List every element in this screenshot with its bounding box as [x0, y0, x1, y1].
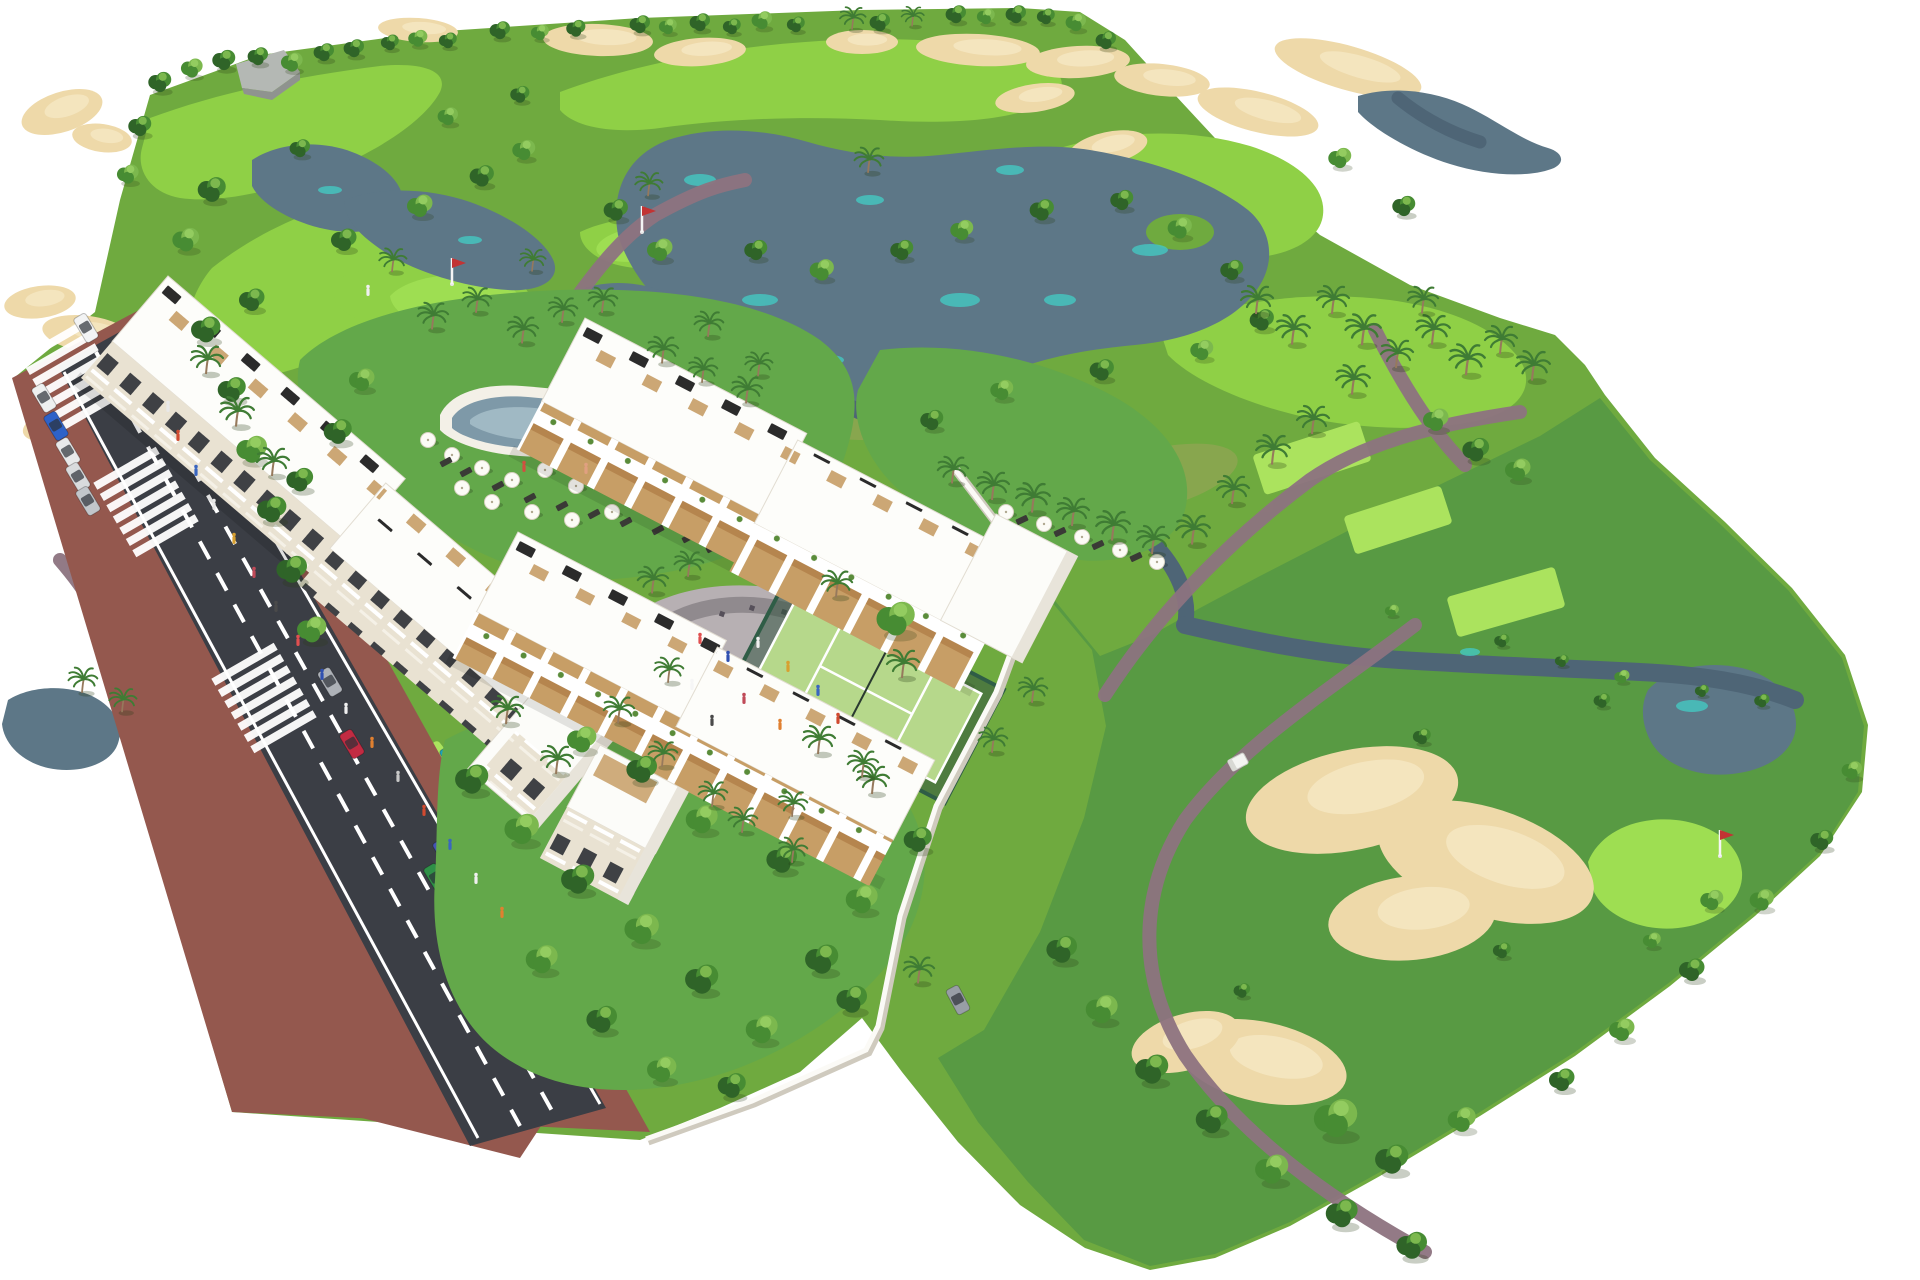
person — [522, 461, 526, 472]
person — [370, 737, 374, 748]
masterplan-render: Aerial 3D architectural render: golf res… — [0, 0, 1920, 1280]
person — [836, 713, 840, 724]
render-canvas: Aerial 3D architectural render: golf res… — [0, 0, 1920, 1280]
tree — [117, 165, 140, 188]
person — [698, 633, 702, 644]
person — [252, 567, 256, 578]
person — [786, 661, 790, 672]
tree — [1328, 148, 1352, 172]
person — [778, 719, 782, 730]
person — [500, 907, 504, 918]
person — [232, 533, 236, 544]
person — [584, 463, 588, 474]
person — [474, 873, 478, 884]
tree — [128, 116, 152, 140]
person — [344, 703, 348, 714]
tree — [1326, 1199, 1360, 1232]
tree — [181, 59, 204, 82]
person — [296, 635, 300, 646]
person — [742, 693, 746, 704]
person — [396, 771, 400, 782]
person — [212, 499, 216, 510]
tree — [1549, 1069, 1576, 1096]
person — [448, 839, 452, 850]
tree — [1392, 196, 1416, 220]
person — [274, 601, 278, 612]
person — [176, 430, 180, 441]
person — [166, 401, 170, 412]
tree — [148, 72, 172, 96]
person — [690, 679, 694, 690]
person — [726, 651, 730, 662]
person — [710, 715, 714, 726]
person — [320, 669, 324, 680]
tree — [212, 50, 236, 74]
person — [194, 465, 198, 476]
person — [422, 805, 426, 816]
person — [816, 685, 820, 696]
person — [366, 285, 370, 296]
person — [756, 637, 760, 648]
